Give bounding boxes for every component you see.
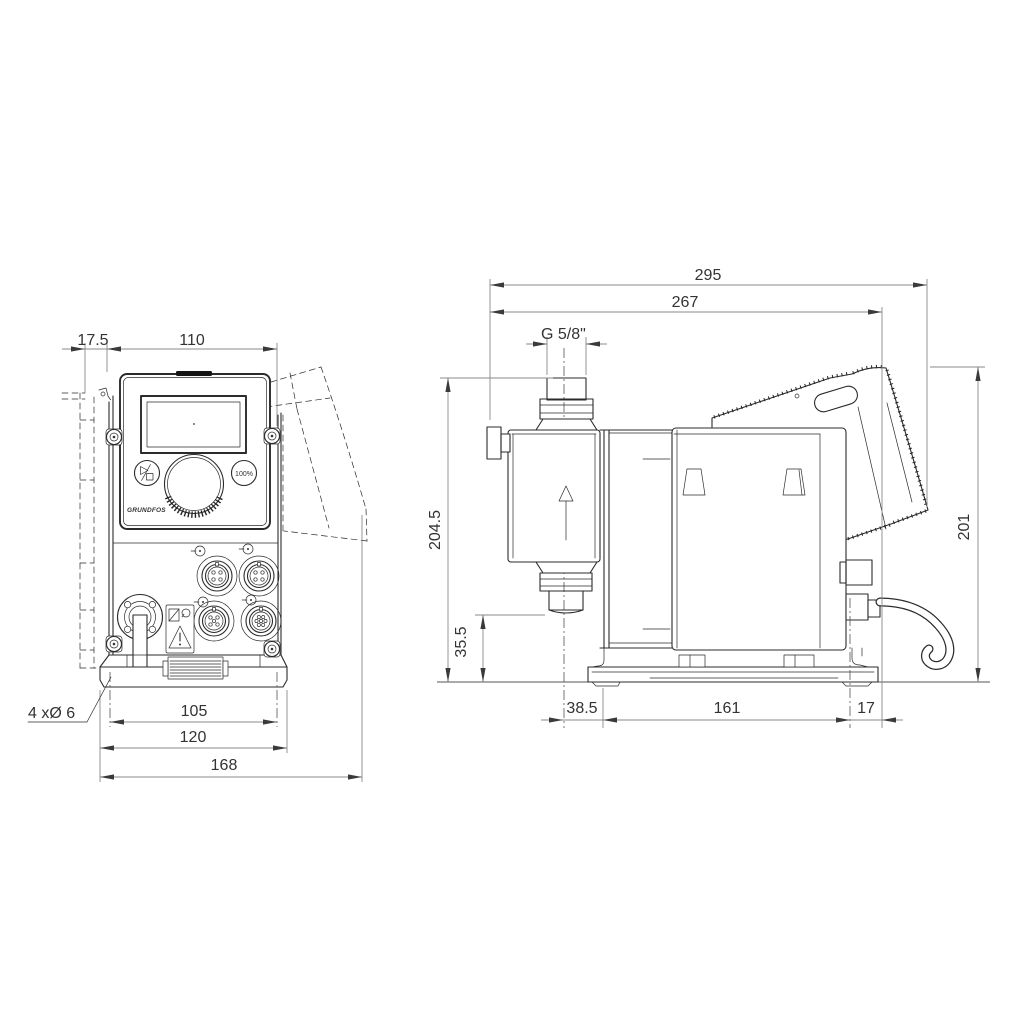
front-view: 100% GRUNDFOS [28,332,367,782]
warning-label [166,605,194,653]
connector-m12[interactable] [239,556,279,596]
dimensional-drawing: 100% GRUNDFOS [0,0,1024,1024]
dim-rear-overhang: 17 [850,700,903,723]
clamp-rail [163,657,228,679]
mounting-holes-label: 4 xØ 6 [28,705,75,722]
dim-wall-depth-label: 17.5 [77,332,108,349]
dim-height-suction-label: 35.5 [453,626,470,657]
dim-overall-width-label: 168 [211,757,238,774]
dim-overall-height-label: 201 [956,514,973,541]
dim-body-width-label: 110 [179,332,205,349]
dim-base-width-label: 120 [180,729,207,746]
union-nut-top [540,399,593,419]
dim-head-offset-label: 38.5 [566,700,597,717]
motor-housing [672,428,846,650]
drawing-canvas: 100% GRUNDFOS [0,0,1024,1024]
base-plate-side [588,648,878,686]
dosing-head [487,348,600,728]
base-plate-front [100,655,287,687]
mounting-holes-callout: 4 xØ 6 [28,677,111,722]
dim-base-length: 161 [603,700,850,723]
connector-m12[interactable] [241,601,281,641]
dim-rear-overhang-label: 17 [857,700,875,717]
dim-base-length-label: 161 [714,700,741,717]
dim-wall-depth: 17.5 [62,332,109,393]
dim-thread-label: G 5/8" [541,326,586,343]
dim-height-suction: 35.5 [453,615,545,682]
connector-m12[interactable] [194,601,234,641]
percent-100-button[interactable]: 100% [232,461,257,486]
dim-overall-height: 201 [930,367,985,682]
adapter-flange [600,430,672,648]
dim-hole-spacing-label: 105 [181,703,208,720]
connector-m12[interactable] [197,556,237,596]
dim-height-discharge-label: 204.5 [427,510,444,550]
union-nut-bottom [540,573,592,591]
side-view: 295 267 G 5/8" 204.5 [427,267,990,728]
wall-bracket [62,393,97,668]
dim-overall-length-label: 295 [695,267,722,284]
suction-thread [549,591,583,613]
discharge-thread [547,378,586,400]
dim-to-housing-rear-label: 267 [672,294,699,311]
panel-top-tab [176,371,212,376]
vent-valve-knob [487,427,510,459]
percent-100-label: 100% [235,471,253,478]
start-stop-button[interactable] [135,461,160,486]
display [141,396,246,453]
dim-thread: G 5/8" [526,326,607,375]
cable-gland-side [840,560,950,665]
control-panel: 100% GRUNDFOS [106,371,280,529]
dial-knob[interactable] [165,455,224,515]
grundfos-logo: GRUNDFOS [127,507,166,514]
